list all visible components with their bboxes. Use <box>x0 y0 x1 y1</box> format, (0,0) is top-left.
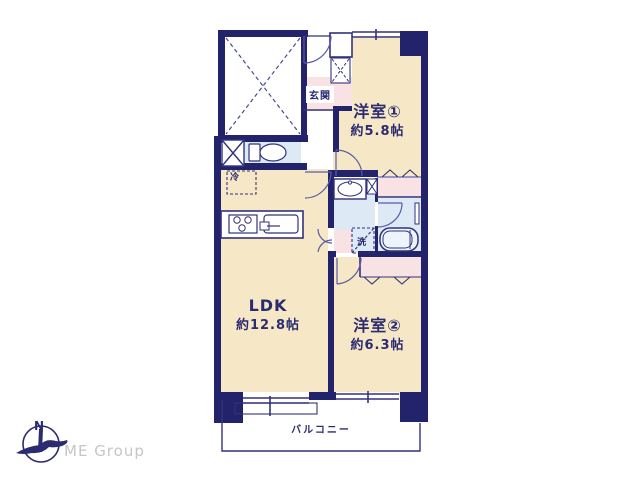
room2-name: 洋室② <box>334 316 421 336</box>
shoe-cabinet <box>330 33 352 57</box>
ldk-floor <box>221 169 328 395</box>
entrance-cabinets <box>330 33 352 83</box>
ldk-size: 約12.8帖 <box>212 318 324 334</box>
ldk-balcony-window <box>235 392 317 416</box>
ldk-name: LDK <box>212 296 324 316</box>
pipe-space-2 <box>367 179 377 194</box>
entrance-door <box>304 36 331 63</box>
void-area <box>226 38 300 134</box>
bath-rail <box>415 203 419 224</box>
washbasin-icon <box>334 179 366 199</box>
entrance-label: 玄関 <box>306 86 334 103</box>
balcony-label: バルコニー <box>222 425 420 438</box>
pillar-bottom-left <box>214 392 243 423</box>
kitchen-counter <box>221 211 303 238</box>
washer-label: 洗 <box>357 238 366 249</box>
room2-size: 約6.3帖 <box>334 338 421 354</box>
toilet-icon <box>249 144 286 161</box>
room2-balcony-window <box>336 391 399 403</box>
floor-plan-page: N 玄関 洋室① 約5.8帖 LDK 約12.8帖 洋室② 約6.3帖 冷 洗 … <box>0 0 640 480</box>
room1-size: 約5.8帖 <box>333 124 422 140</box>
pillar-bottom-right <box>400 392 428 422</box>
company-name: ME Group <box>64 442 145 460</box>
refrigerator-label: 冷 <box>230 173 239 184</box>
closet1-floor <box>378 178 421 197</box>
closet2-floor <box>360 257 421 277</box>
room1-name: 洋室① <box>333 102 422 122</box>
floor-plan-drawing: N <box>0 0 640 480</box>
washroom-entry-floor <box>334 230 352 253</box>
pipe-space-1 <box>222 140 244 166</box>
compass-logo: N <box>16 419 67 462</box>
